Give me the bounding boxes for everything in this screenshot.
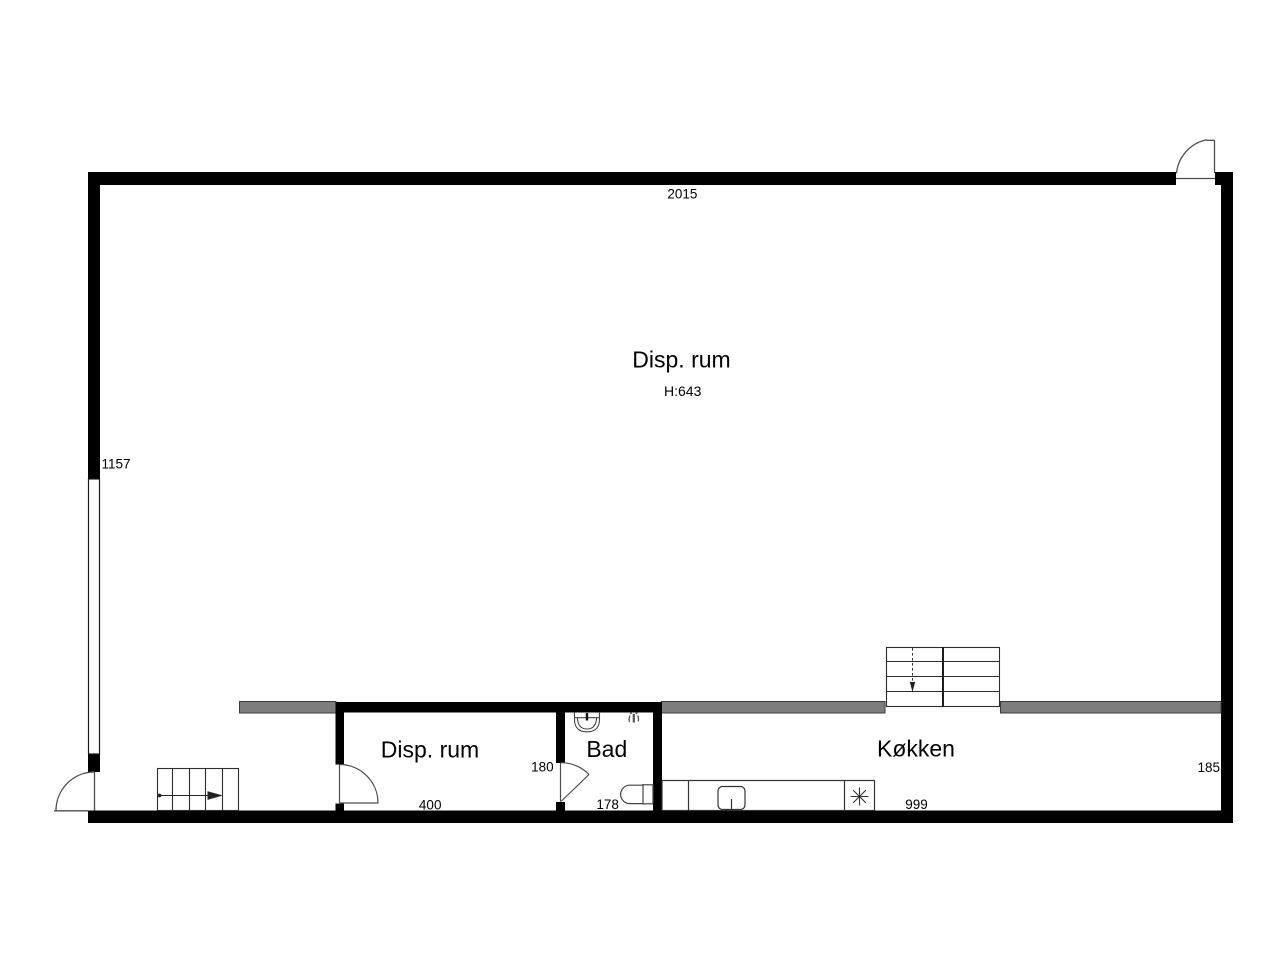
svg-text:Køkken: Køkken xyxy=(877,736,955,762)
svg-text:Bad: Bad xyxy=(586,736,627,762)
svg-text:Disp. rum: Disp. rum xyxy=(381,737,479,763)
svg-text:400: 400 xyxy=(419,798,442,813)
svg-text:185: 185 xyxy=(1197,760,1220,775)
svg-text:1157: 1157 xyxy=(102,456,131,471)
svg-text:178: 178 xyxy=(596,797,619,812)
svg-text:2015: 2015 xyxy=(667,187,697,202)
svg-text:180: 180 xyxy=(531,759,554,774)
svg-text:H:643: H:643 xyxy=(664,383,702,399)
svg-text:Disp. rum: Disp. rum xyxy=(632,347,730,373)
svg-text:999: 999 xyxy=(905,797,928,812)
